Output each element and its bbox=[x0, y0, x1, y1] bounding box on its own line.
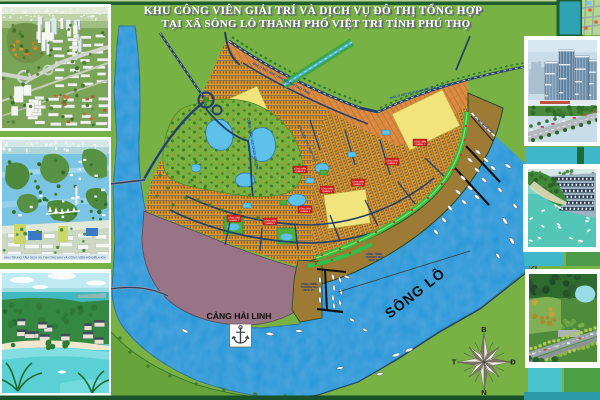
svg-text:QUẢNG 4: QUẢNG 4 bbox=[322, 190, 333, 193]
svg-text:QUẢNG 8: QUẢNG 8 bbox=[295, 170, 306, 173]
svg-text:DỊCH VỤ: DỊCH VỤ bbox=[304, 288, 315, 292]
svg-text:TẠI XÃ SÔNG LÔ THÀNH PHỐ VIỆT: TẠI XÃ SÔNG LÔ THÀNH PHỐ VIỆT TRÌ TỈNH P… bbox=[161, 17, 470, 30]
svg-text:QUẢNG 6: QUẢNG 6 bbox=[387, 162, 398, 165]
svg-text:B: B bbox=[481, 325, 487, 334]
svg-text:KHU TRUNG TÂM DỊCH VỤ THƯƠNG M: KHU TRUNG TÂM DỊCH VỤ THƯƠNG MẠI VÀ CÔNG… bbox=[4, 255, 106, 260]
svg-text:QUẢNG 1: QUẢNG 1 bbox=[229, 219, 240, 222]
svg-text:QUẢNG 3: QUẢNG 3 bbox=[300, 210, 311, 213]
svg-text:CẢNG HẢI LINH: CẢNG HẢI LINH bbox=[207, 310, 272, 321]
svg-text:QUẢNG 7: QUẢNG 7 bbox=[415, 143, 426, 146]
svg-text:Đ: Đ bbox=[510, 358, 516, 367]
svg-text:DỊCH VỤ: DỊCH VỤ bbox=[369, 258, 380, 262]
svg-text:QUẢNG 5: QUẢNG 5 bbox=[353, 183, 364, 186]
svg-text:KHU CÔNG VIÊN GIẢI TRÍ VÀ DỊCH: KHU CÔNG VIÊN GIẢI TRÍ VÀ DỊCH VỤ ĐÔ THỊ… bbox=[144, 4, 482, 17]
svg-text:T: T bbox=[452, 358, 457, 367]
svg-text:QUẢNG 2: QUẢNG 2 bbox=[265, 222, 276, 225]
